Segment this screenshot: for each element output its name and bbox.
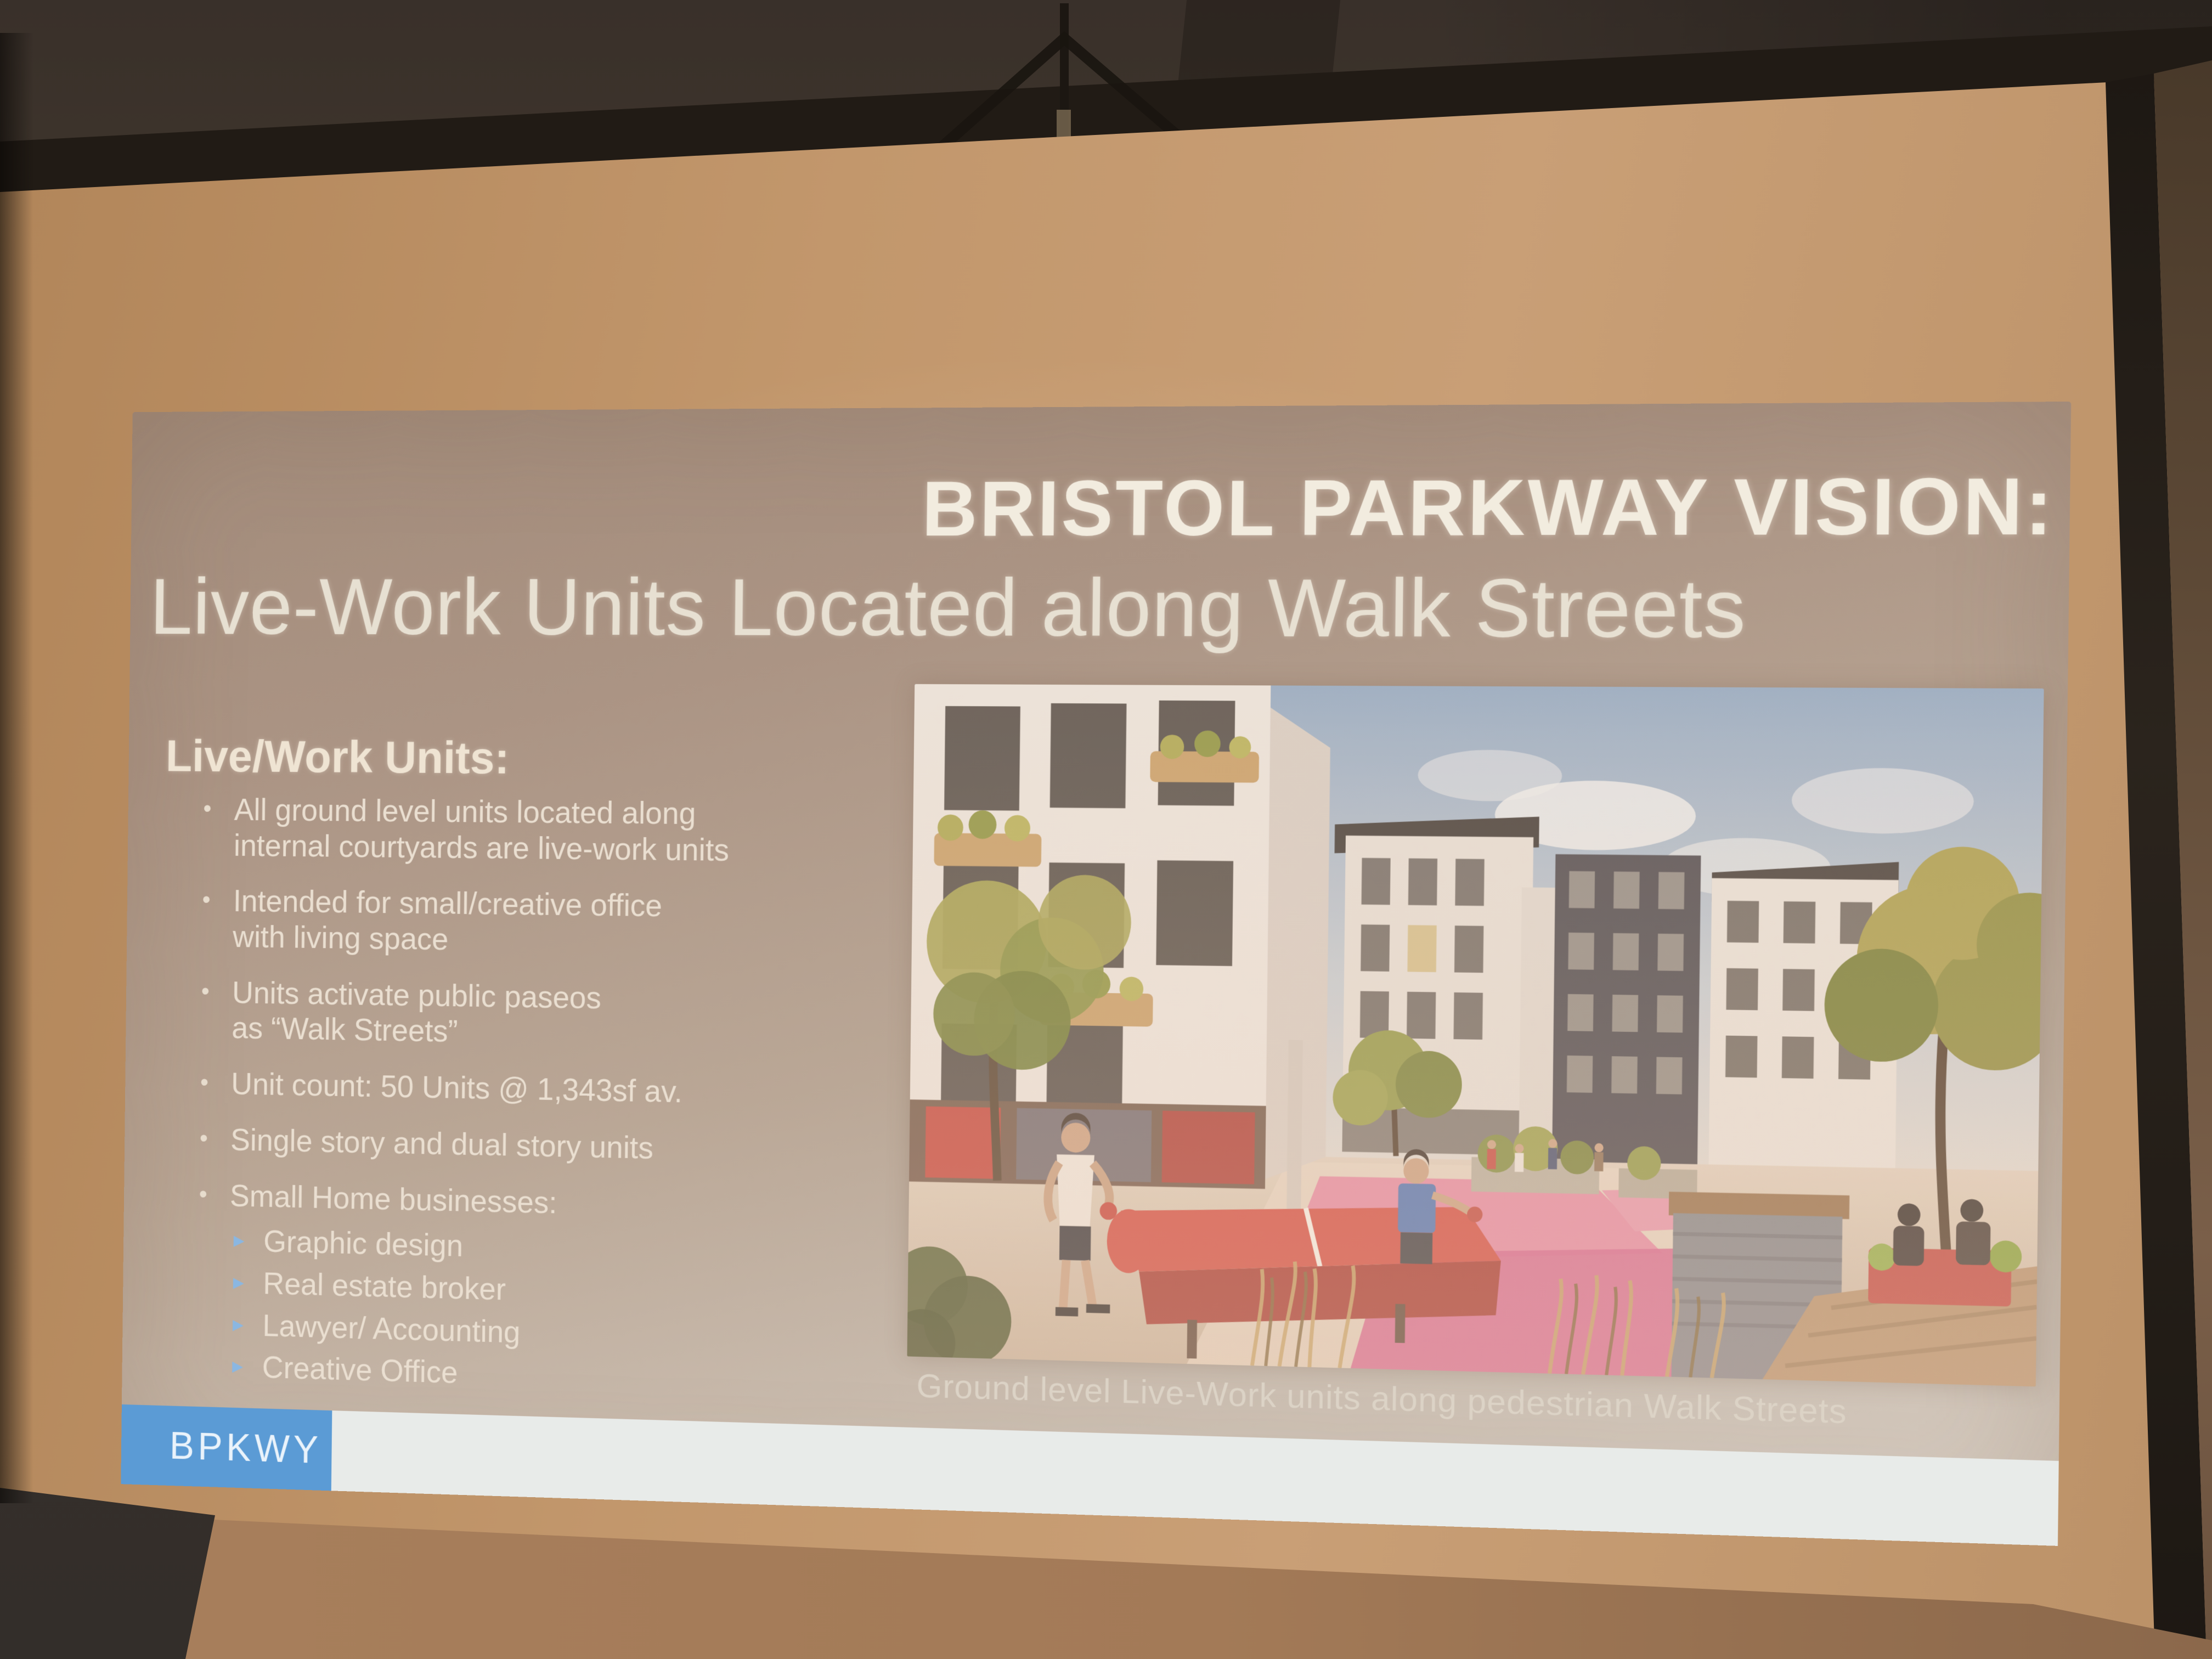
bpkwy-label: BPKWY bbox=[170, 1424, 323, 1472]
bullet-icon: • bbox=[200, 1124, 208, 1153]
sub-bullet-text: Real estate broker bbox=[263, 1267, 506, 1307]
bullet-item: • Small Home businesses: ▸ Graphic desig… bbox=[183, 1177, 923, 1404]
bullet-icon: • bbox=[203, 794, 212, 823]
photo-left-edge-shadow bbox=[0, 33, 33, 1503]
bullet-icon: • bbox=[202, 885, 211, 914]
sub-bullet-arrow-icon: ▸ bbox=[233, 1227, 244, 1253]
bullet-text: Single story and dual story units bbox=[230, 1123, 653, 1166]
bullet-text: Intended for small/creative office with … bbox=[233, 884, 662, 957]
bullet-text: All ground level units located along int… bbox=[234, 793, 730, 867]
sub-bullet-text: Graphic design bbox=[263, 1224, 463, 1263]
bullet-item: • Unit count: 50 Units @ 1,343sf av. bbox=[185, 1065, 924, 1115]
bullet-item: • Single story and dual story units bbox=[185, 1121, 923, 1172]
sub-bullet-text: Creative Office bbox=[262, 1351, 458, 1390]
conference-room-photo: BRISTOL PARKWAY VISION: Live-Work Units … bbox=[0, 0, 2212, 1659]
sub-bullet-text: Lawyer/ Accounting bbox=[262, 1308, 521, 1350]
bullet-icon: • bbox=[201, 977, 210, 1005]
sub-bullet-arrow-icon: ▸ bbox=[233, 1268, 244, 1295]
slide-title-line2: Live-Work Units Located along Walk Stree… bbox=[149, 561, 1747, 657]
bullet-text: Unit count: 50 Units @ 1,343sf av. bbox=[231, 1067, 682, 1109]
sub-bullet-list: ▸ Graphic design ▸ Real estate broker ▸ … bbox=[228, 1223, 922, 1404]
slide-title-line1: BRISTOL PARKWAY VISION: bbox=[921, 461, 2055, 554]
bullet-item: • Units activate public paseos as “Walk … bbox=[186, 974, 925, 1058]
section-heading: Live/Work Units: bbox=[166, 730, 510, 785]
bpkwy-logo-badge: BPKWY bbox=[121, 1404, 332, 1491]
bullet-item: • Intended for small/creative office wit… bbox=[187, 883, 926, 964]
bullet-text: Small Home businesses: bbox=[230, 1178, 557, 1220]
bullet-list: • All ground level units located along i… bbox=[182, 792, 927, 1425]
sub-bullet-arrow-icon: ▸ bbox=[232, 1352, 243, 1379]
bullet-text: Units activate public paseos as “Walk St… bbox=[232, 975, 601, 1049]
projected-slide: BRISTOL PARKWAY VISION: Live-Work Units … bbox=[121, 402, 2071, 1546]
bullet-item: • All ground level units located along i… bbox=[188, 792, 927, 871]
bullet-icon: • bbox=[199, 1180, 207, 1209]
bullet-icon: • bbox=[200, 1068, 209, 1097]
sub-bullet-arrow-icon: ▸ bbox=[233, 1311, 244, 1337]
courtyard-rendering-image bbox=[907, 684, 2044, 1387]
